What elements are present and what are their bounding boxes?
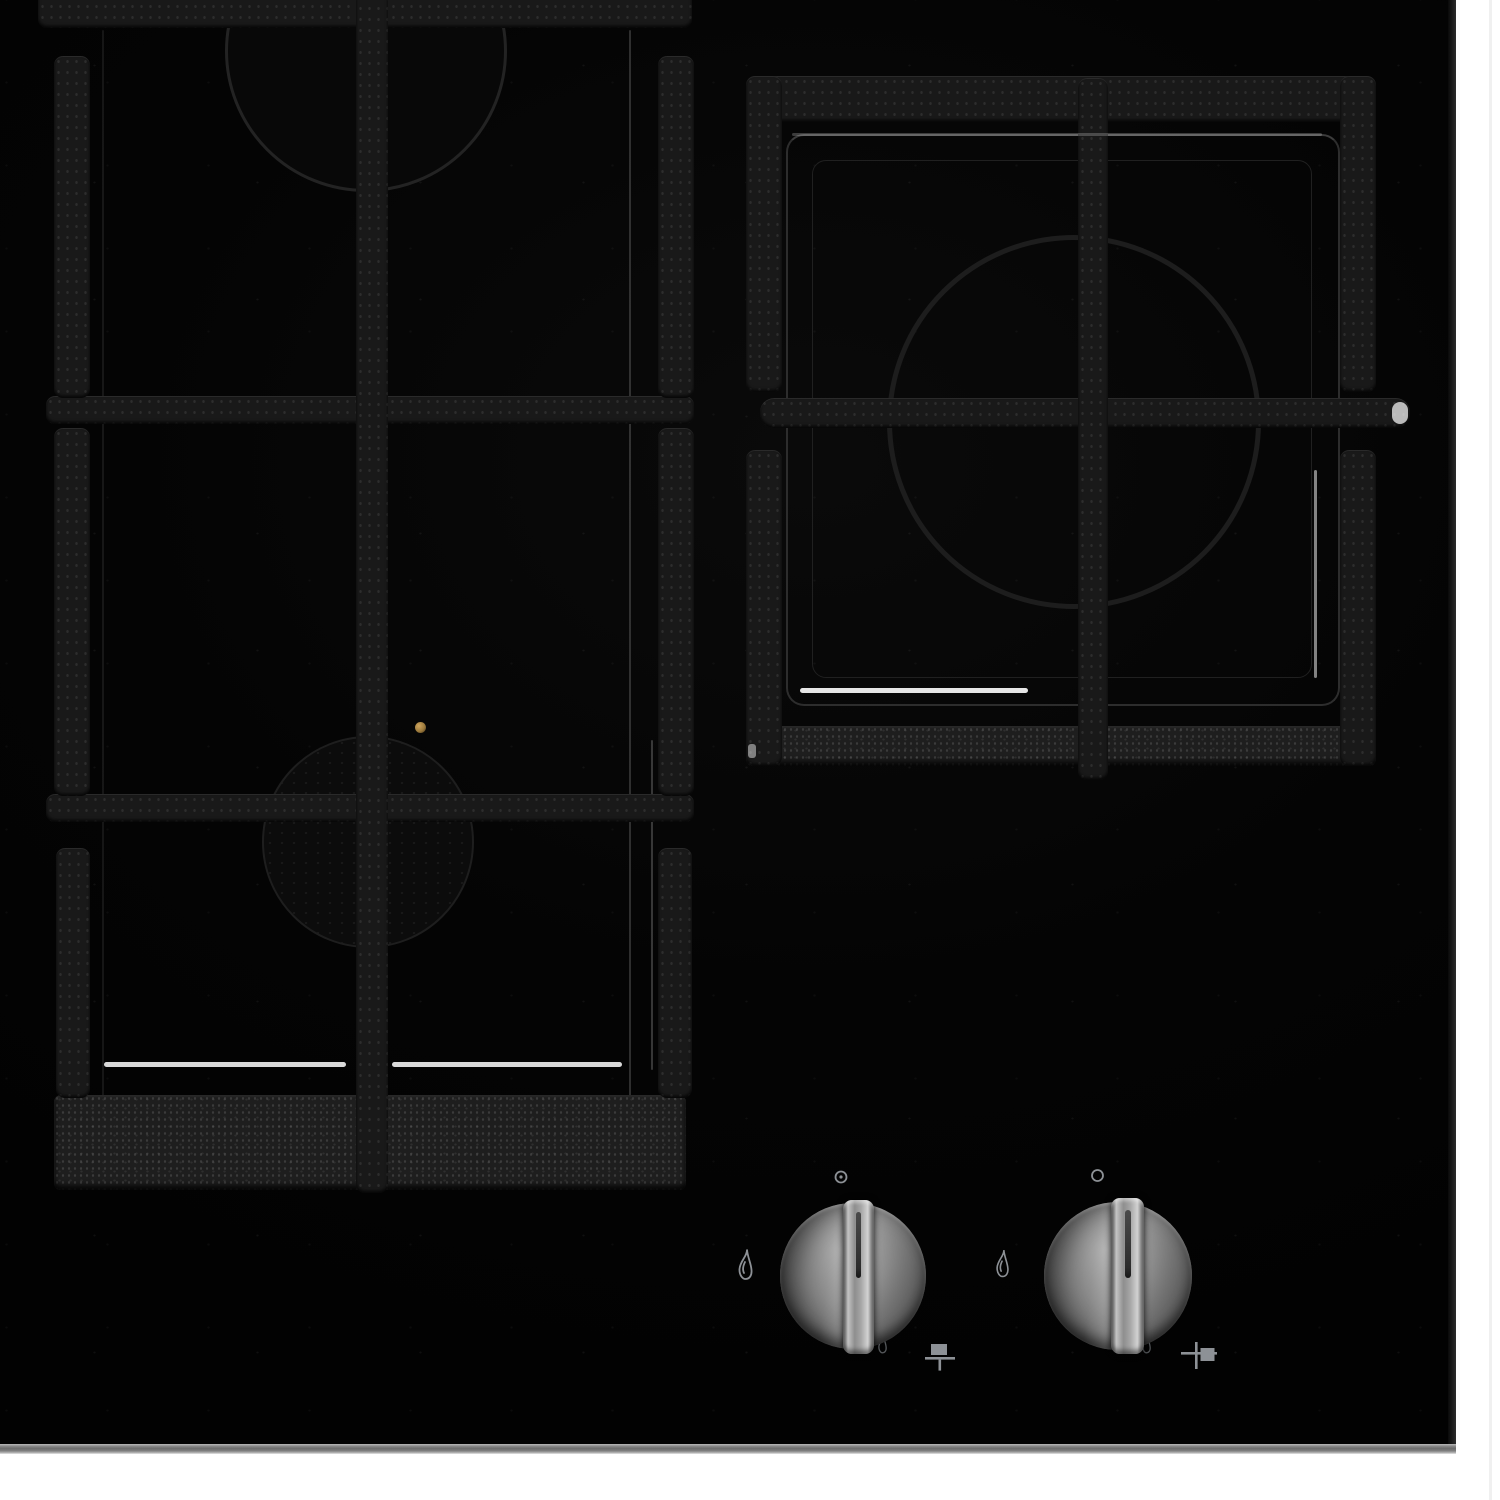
glass-right-edge-shade (1448, 0, 1456, 1444)
right-grate-center-bar (1078, 78, 1108, 780)
flame-high-icon (994, 1248, 1011, 1279)
left-support-reflection-line (102, 30, 104, 1170)
right-support-highlight (800, 688, 1028, 693)
flame-high-icon (736, 1248, 755, 1281)
off-dot-icon (833, 1169, 849, 1185)
right-grate-frame-left-2 (746, 450, 782, 766)
right-grate-frame-right-1 (1340, 76, 1376, 392)
glass-bottom-edge (0, 1444, 1456, 1454)
pictogram-stem (939, 1360, 942, 1371)
right-grate-frame-bottom (746, 726, 1376, 766)
left-grate-right-edge-2 (658, 428, 694, 796)
left-grate-center-bar (356, 0, 388, 1193)
left-burner-knob[interactable] (770, 1190, 940, 1360)
left-knob-slot (856, 1212, 861, 1278)
backdrop-shadow-line (1489, 0, 1492, 1500)
igniter-electrode-dot (415, 722, 426, 733)
left-support-reflection-line (629, 30, 631, 1170)
left-grate-left-edge-2 (54, 428, 90, 796)
left-grate-right-edge-3 (658, 848, 692, 1098)
left-support-highlight (392, 1062, 622, 1067)
left-grate-left-edge-3 (56, 848, 90, 1098)
flame-high-path (739, 1250, 751, 1280)
left-grate-right-edge-1 (658, 56, 694, 398)
off-circle-icon (1090, 1168, 1105, 1183)
right-support-highlight (1314, 470, 1317, 678)
flame-high-path (997, 1250, 1008, 1276)
right-grate-frame-top (746, 76, 1376, 122)
right-grate-frame-left-1 (746, 76, 782, 392)
right-support-highlight (792, 133, 1322, 136)
left-support-highlight (104, 1062, 346, 1067)
right-knob-slot (1125, 1210, 1131, 1278)
off-circle-ring (1092, 1170, 1103, 1181)
right-burner-knob[interactable] (1036, 1188, 1206, 1358)
left-grate-left-edge-1 (54, 56, 90, 398)
photo-canvas (0, 0, 1500, 1500)
crossbar-end-highlight (1392, 402, 1408, 424)
frame-corner-highlight (748, 744, 756, 758)
left-support-reflection-line (651, 740, 653, 1070)
right-grate-frame-right-2 (1340, 450, 1376, 766)
off-dot-center (839, 1175, 842, 1178)
